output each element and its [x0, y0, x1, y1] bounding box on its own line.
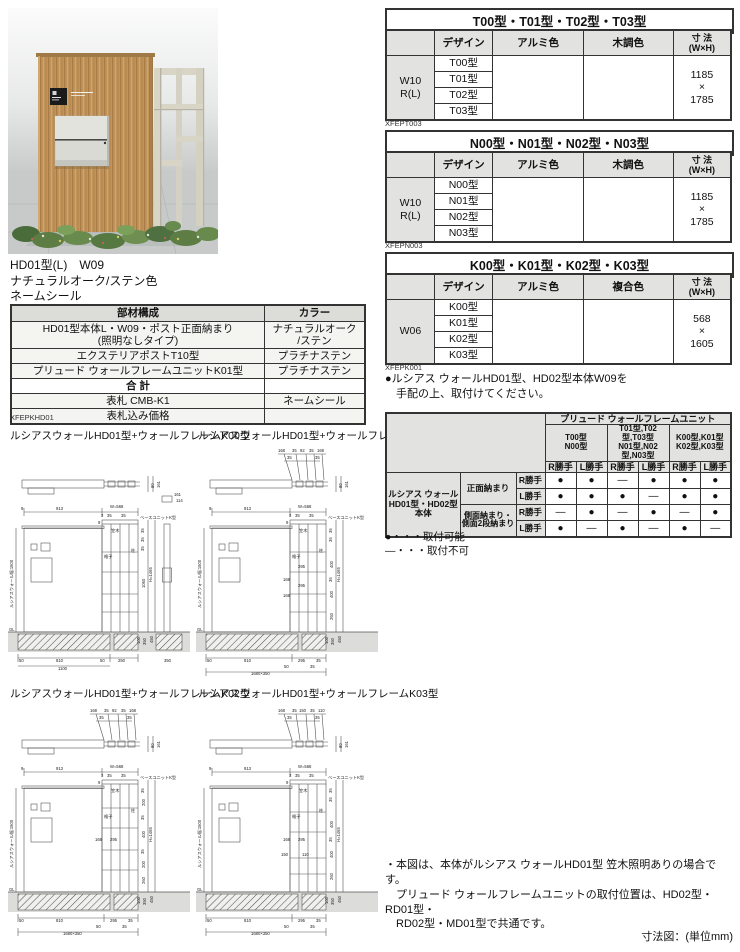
width-label: W06: [386, 300, 434, 365]
svg-text:9: 9: [286, 520, 289, 525]
width-label: W10 R(L): [386, 178, 434, 243]
svg-text:1680×350: 1680×350: [251, 931, 270, 936]
product-photo: [8, 8, 218, 254]
svg-text:ベースユニットK型: ベースユニットK型: [328, 514, 364, 520]
svg-text:161: 161: [344, 480, 349, 488]
svg-text:295: 295: [110, 918, 118, 923]
svg-text:400: 400: [329, 850, 334, 858]
svg-text:35: 35: [140, 788, 145, 793]
svg-text:260: 260: [141, 876, 146, 884]
svg-text:810: 810: [244, 658, 252, 663]
svg-text:3: 3: [289, 513, 292, 518]
svg-text:161: 161: [174, 492, 182, 497]
size-header: 寸 法 (W×H): [673, 152, 731, 178]
svg-text:35: 35: [107, 773, 112, 778]
parts-row-color: [264, 409, 365, 425]
hand-label: R勝手: [516, 504, 545, 520]
svg-text:35: 35: [104, 708, 109, 713]
alumi-price-cell: [493, 300, 583, 365]
svg-text:35: 35: [309, 448, 314, 453]
parts-header: 部材構成: [11, 305, 264, 322]
mailbox: [55, 116, 109, 169]
svg-text:ルシアスウォール幅:1500: ルシアスウォール幅:1500: [196, 819, 203, 868]
svg-text:35: 35: [140, 537, 145, 542]
svg-text:ベースユニットK型: ベースユニットK型: [140, 774, 176, 780]
svg-text:笠木: 笠木: [299, 787, 308, 794]
svg-text:3: 3: [101, 513, 104, 518]
svg-text:格子: 格子: [104, 553, 112, 560]
svg-text:35: 35: [287, 455, 292, 460]
svg-text:9: 9: [21, 506, 24, 511]
svg-text:400: 400: [329, 560, 334, 568]
hand-header: L勝手: [638, 461, 669, 472]
alumi-price-cell: [493, 178, 583, 243]
svg-text:295: 295: [298, 583, 306, 588]
hand-label: L勝手: [516, 520, 545, 537]
svg-text:3: 3: [101, 773, 104, 778]
svg-text:161: 161: [344, 740, 349, 748]
parts-row-color: ナチュラルオーク /ステン: [264, 322, 365, 349]
compat-cell: ●: [607, 520, 638, 537]
svg-text:35: 35: [316, 918, 321, 923]
svg-text:350: 350: [330, 637, 335, 645]
compat-cell: ―: [638, 520, 669, 537]
svg-text:913: 913: [56, 506, 64, 511]
compat-cell: ―: [638, 488, 669, 504]
svg-text:W=568: W=568: [110, 504, 124, 509]
svg-text:810: 810: [56, 658, 64, 663]
svg-text:110: 110: [302, 852, 309, 857]
design-cell: N03型: [434, 226, 493, 243]
svg-text:150: 150: [281, 852, 289, 857]
svg-text:913: 913: [244, 766, 252, 771]
blank-cell: [386, 30, 434, 56]
svg-text:913: 913: [56, 766, 64, 771]
design-cell: N00型: [434, 178, 493, 194]
svg-text:35: 35: [328, 577, 333, 582]
size-cell: 1185 × 1785: [673, 56, 731, 121]
body-label: ルシアス ウォール HD01型・HD02型 本体: [386, 472, 460, 537]
design-cell: N01型: [434, 194, 493, 210]
svg-text:9: 9: [209, 506, 212, 511]
svg-text:350: 350: [142, 897, 147, 905]
design-cell: T01型: [434, 72, 493, 88]
svg-text:295: 295: [298, 837, 306, 842]
wood-price-cell: [583, 56, 673, 121]
svg-text:50: 50: [207, 918, 212, 923]
svg-text:35: 35: [295, 773, 300, 778]
svg-text:ルシアスウォール幅:1500: ルシアスウォール幅:1500: [8, 559, 15, 608]
composite-header: 複合色: [583, 274, 673, 300]
svg-text:35: 35: [310, 708, 315, 713]
mount-front-label: 正面納まり: [460, 472, 516, 504]
svg-text:350: 350: [330, 897, 335, 905]
design-cell: T03型: [434, 104, 493, 121]
alumi-header: アルミ色: [493, 274, 583, 300]
svg-text:810: 810: [56, 918, 64, 923]
svg-text:1680×350: 1680×350: [63, 931, 82, 936]
compat-cell: ―: [669, 504, 700, 520]
spec-table-k: デザイン アルミ色 複合色 寸 法 (W×H) W06 K00型 568 × 1…: [385, 273, 732, 365]
svg-text:35: 35: [140, 546, 145, 551]
parts-row-name: HD01型本体L・W09・ポスト正面納まり (照明なしタイプ): [11, 322, 264, 349]
svg-text:9: 9: [98, 780, 101, 785]
svg-text:295: 295: [298, 918, 306, 923]
dimension-drawing-k03: 16835150351103535801619913W=568335359笠木ベ…: [196, 700, 378, 940]
svg-text:80: 80: [150, 483, 155, 488]
design-header: デザイン: [434, 30, 493, 56]
svg-text:笠木: 笠木: [111, 527, 120, 534]
hand-label: L勝手: [516, 488, 545, 504]
caption-seal: ネームシール: [10, 289, 157, 305]
svg-text:ベースユニットK型: ベースユニットK型: [328, 774, 364, 780]
width-label: W10 R(L): [386, 56, 434, 121]
svg-text:168: 168: [283, 577, 291, 582]
svg-text:450: 450: [149, 635, 154, 643]
wood-price-cell: [583, 178, 673, 243]
svg-text:35: 35: [287, 715, 292, 720]
svg-text:450: 450: [337, 635, 342, 643]
compat-cell: ●: [669, 520, 700, 537]
svg-text:35: 35: [140, 815, 145, 820]
svg-text:35: 35: [328, 788, 333, 793]
svg-text:1680×350: 1680×350: [251, 671, 270, 676]
svg-text:35: 35: [295, 513, 300, 518]
dimension-drawing-k02: 1683592351683535801619913W=568335359笠木ベー…: [8, 700, 190, 940]
size-cell: 568 × 1605: [673, 300, 731, 365]
blank-cell: [386, 152, 434, 178]
svg-text:ベースユニットK型: ベースユニットK型: [140, 514, 176, 520]
spec-table-n: デザイン アルミ色 木調色 寸 法 (W×H) W10 R(L) N00型 11…: [385, 151, 732, 243]
compat-legend: ●・・・取付可能 ―・・・取付不可: [385, 530, 469, 558]
parts-row-color: ネームシール: [264, 394, 365, 409]
svg-text:35: 35: [107, 513, 112, 518]
svg-text:H=1465: H=1465: [336, 567, 341, 582]
dimension-drawing-k00: 801611611149913W=568335359笠木ベースユニットK型格子柱…: [8, 440, 190, 680]
svg-text:913: 913: [244, 506, 252, 511]
svg-text:3: 3: [289, 773, 292, 778]
svg-text:格子: 格子: [292, 813, 300, 820]
svg-text:35: 35: [99, 715, 104, 720]
svg-text:250: 250: [118, 658, 126, 663]
design-cell: K00型: [434, 300, 493, 316]
svg-text:35: 35: [122, 924, 127, 929]
svg-text:295: 295: [298, 658, 306, 663]
blank-cell: [386, 274, 434, 300]
svg-text:35: 35: [310, 664, 315, 669]
svg-text:810: 810: [244, 918, 252, 923]
svg-text:168: 168: [90, 708, 98, 713]
svg-text:114: 114: [176, 498, 183, 503]
svg-text:柱: 柱: [319, 547, 324, 554]
svg-text:35: 35: [309, 513, 314, 518]
svg-text:笠木: 笠木: [111, 787, 120, 794]
parts-row-name: 表札 CMB-K1: [11, 394, 264, 409]
spec-code-t: XFEPT003: [385, 119, 422, 128]
alumi-price-cell: [493, 56, 583, 121]
parts-table-code: XFEPKHD01: [10, 413, 54, 422]
hand-header: L勝手: [700, 461, 731, 472]
svg-text:9: 9: [286, 780, 289, 785]
svg-text:笠木: 笠木: [299, 527, 308, 534]
design-cell: T00型: [434, 56, 493, 72]
order-note: ●ルシアス ウォールHD01型、HD02型本体W09を 手配の上、取付けてくださ…: [385, 372, 735, 402]
alumi-header: アルミ色: [493, 152, 583, 178]
drawing-title-k03: ルシアスウォールHD01型+ウォールフレームK03型: [198, 686, 438, 701]
design-header: デザイン: [434, 274, 493, 300]
parts-row-name: エクステリアポストT10型: [11, 349, 264, 364]
parts-row-color: プラチナステン: [264, 349, 365, 364]
compat-cell: ●: [607, 488, 638, 504]
design-cell: K03型: [434, 348, 493, 365]
svg-text:GL: GL: [9, 887, 15, 892]
compat-cell: ●: [700, 488, 731, 504]
svg-text:H=1465: H=1465: [148, 567, 153, 582]
bottom-notes: ・本図は、本体がルシアス ウォールHD01型 笠木照明ありの場合です。 プリュー…: [385, 858, 735, 932]
design-cell: N02型: [434, 210, 493, 226]
compat-cell: ―: [576, 520, 607, 537]
svg-text:161: 161: [156, 480, 161, 488]
svg-text:35: 35: [315, 455, 320, 460]
svg-text:168: 168: [278, 448, 286, 453]
svg-text:50: 50: [19, 918, 24, 923]
alumi-header: アルミ色: [493, 30, 583, 56]
svg-text:80: 80: [338, 743, 343, 748]
compat-cell: ●: [638, 472, 669, 488]
size-cell: 1185 × 1785: [673, 178, 731, 243]
composite-price-cell: [583, 300, 673, 365]
hand-header: L勝手: [576, 461, 607, 472]
svg-text:92: 92: [300, 448, 305, 453]
svg-text:260: 260: [329, 872, 334, 880]
size-header: 寸 法 (W×H): [673, 274, 731, 300]
svg-text:W=568: W=568: [298, 764, 312, 769]
svg-text:50: 50: [284, 924, 289, 929]
svg-text:H=1465: H=1465: [336, 827, 341, 842]
svg-text:200: 200: [141, 798, 146, 806]
svg-text:35: 35: [292, 448, 297, 453]
svg-text:35: 35: [121, 513, 126, 518]
svg-text:35: 35: [121, 708, 126, 713]
svg-text:100: 100: [136, 636, 141, 644]
wood-header: 木調色: [583, 152, 673, 178]
svg-text:35: 35: [310, 924, 315, 929]
svg-text:1100: 1100: [58, 666, 68, 671]
svg-text:161: 161: [156, 740, 161, 748]
compat-cell: ●: [545, 488, 576, 504]
parts-total-color: [264, 379, 365, 394]
svg-text:格子: 格子: [292, 553, 300, 560]
svg-text:110: 110: [318, 708, 325, 713]
svg-text:50: 50: [96, 924, 101, 929]
svg-text:50: 50: [284, 664, 289, 669]
frame-unit-title: プリュード ウォールフレームユニット: [545, 413, 731, 425]
size-header: 寸 法 (W×H): [673, 30, 731, 56]
wood-header: 木調色: [583, 30, 673, 56]
svg-text:260: 260: [329, 612, 334, 620]
svg-text:柱: 柱: [131, 547, 136, 554]
svg-text:柱: 柱: [319, 807, 324, 814]
svg-text:100: 100: [136, 896, 141, 904]
parts-table: 部材構成 カラー HD01型本体L・W09・ポスト正面納まり (照明なしタイプ)…: [10, 304, 366, 425]
photo-caption: HD01型(L) W09 ナチュラルオーク/ステン色 ネームシール: [10, 258, 157, 305]
svg-text:GL: GL: [9, 627, 15, 632]
compat-cell: ●: [638, 504, 669, 520]
compat-cell: ●: [576, 504, 607, 520]
svg-text:168: 168: [283, 593, 291, 598]
design-cell: K01型: [434, 316, 493, 332]
caption-color: ナチュラルオーク/ステン色: [10, 274, 157, 290]
compat-cell: ●: [576, 488, 607, 504]
svg-text:168: 168: [283, 837, 291, 842]
svg-text:150: 150: [299, 708, 307, 713]
parts-row-name: プリュード ウォールフレームユニットK01型: [11, 364, 264, 379]
compat-cell: ●: [669, 472, 700, 488]
svg-text:GL: GL: [197, 627, 203, 632]
svg-text:35: 35: [128, 918, 133, 923]
svg-text:168: 168: [129, 708, 137, 713]
svg-text:350: 350: [164, 658, 172, 663]
color-header: カラー: [264, 305, 365, 322]
svg-text:50: 50: [100, 658, 105, 663]
svg-text:35: 35: [292, 708, 297, 713]
svg-text:295: 295: [298, 564, 306, 569]
design-cell: K02型: [434, 332, 493, 348]
svg-text:35: 35: [315, 715, 320, 720]
svg-text:35: 35: [328, 797, 333, 802]
svg-text:1060: 1060: [141, 578, 146, 588]
legend-ok: ●・・・取付可能: [385, 530, 469, 544]
svg-text:W=568: W=568: [298, 504, 312, 509]
svg-text:450: 450: [337, 895, 342, 903]
catalog-page: HD01型(L) W09 ナチュラルオーク/ステン色 ネームシール 部材構成 カ…: [0, 0, 740, 952]
product-photo-image: [8, 8, 218, 254]
compat-cell: ●: [700, 504, 731, 520]
svg-text:80: 80: [338, 483, 343, 488]
caption-model: HD01型(L) W09: [10, 258, 157, 274]
svg-text:400: 400: [329, 590, 334, 598]
svg-text:200: 200: [141, 860, 146, 868]
compat-cell: ●: [576, 472, 607, 488]
compat-cell: ―: [545, 504, 576, 520]
svg-text:9: 9: [21, 766, 24, 771]
svg-text:9: 9: [209, 766, 212, 771]
svg-text:35: 35: [127, 715, 132, 720]
compat-cell: ―: [607, 504, 638, 520]
svg-text:W=568: W=568: [110, 764, 124, 769]
svg-text:35: 35: [328, 528, 333, 533]
compat-cell: ●: [700, 472, 731, 488]
design-header: デザイン: [434, 152, 493, 178]
compat-cell: ―: [700, 520, 731, 537]
svg-text:450: 450: [149, 895, 154, 903]
group-t123: T01型,T02型,T03型 N01型,N02型,N03型: [607, 425, 669, 462]
svg-text:168: 168: [317, 448, 325, 453]
spec-code-k: XFEPK001: [385, 363, 422, 372]
design-cell: T02型: [434, 88, 493, 104]
svg-text:35: 35: [140, 528, 145, 533]
svg-text:350: 350: [142, 637, 147, 645]
legend-ng: ―・・・取付不可: [385, 544, 469, 558]
svg-text:H=1465: H=1465: [148, 827, 153, 842]
group-k: K00型,K01型 K02型,K03型: [669, 425, 731, 462]
group-t00: T00型 N00型: [545, 425, 607, 462]
svg-text:50: 50: [207, 658, 212, 663]
svg-text:9: 9: [98, 520, 101, 525]
hand-label: R勝手: [516, 472, 545, 488]
svg-text:ルシアスウォール幅:1500: ルシアスウォール幅:1500: [196, 559, 203, 608]
dimension-unit-note: 寸法図：(単位mm): [385, 928, 733, 944]
svg-text:168: 168: [278, 708, 286, 713]
hand-header: R勝手: [669, 461, 700, 472]
svg-text:168: 168: [95, 837, 103, 842]
compat-cell: ●: [545, 520, 576, 537]
parts-row-color: プラチナステン: [264, 364, 365, 379]
hand-header: R勝手: [607, 461, 638, 472]
svg-text:400: 400: [329, 820, 334, 828]
dimension-drawing-k01: 1683592351683535801619913W=568335359笠木ベー…: [196, 440, 378, 680]
parts-total-row: 合 計: [11, 379, 264, 394]
compat-table: プリュード ウォールフレームユニット T00型 N00型 T01型,T02型,T…: [385, 412, 732, 538]
svg-text:80: 80: [150, 743, 155, 748]
svg-text:92: 92: [112, 708, 117, 713]
svg-text:GL: GL: [197, 887, 203, 892]
svg-text:35: 35: [316, 658, 321, 663]
svg-text:35: 35: [328, 537, 333, 542]
svg-text:400: 400: [141, 830, 146, 838]
hand-header: R勝手: [545, 461, 576, 472]
compat-cell: ―: [607, 472, 638, 488]
svg-text:格子: 格子: [104, 813, 112, 820]
spec-table-t: デザイン アルミ色 木調色 寸 法 (W×H) W10 R(L) T00型 11…: [385, 29, 732, 121]
svg-text:ルシアスウォール幅:1500: ルシアスウォール幅:1500: [8, 819, 15, 868]
svg-text:35: 35: [309, 773, 314, 778]
blank-cell: [386, 413, 545, 472]
svg-text:100: 100: [324, 636, 329, 644]
svg-text:35: 35: [140, 849, 145, 854]
svg-text:50: 50: [19, 658, 24, 663]
svg-text:295: 295: [110, 837, 118, 842]
compat-cell: ●: [545, 472, 576, 488]
spec-code-n: XFEPN003: [385, 241, 423, 250]
svg-text:35: 35: [328, 837, 333, 842]
compat-cell: ●: [669, 488, 700, 504]
svg-text:35: 35: [121, 773, 126, 778]
svg-text:100: 100: [324, 896, 329, 904]
